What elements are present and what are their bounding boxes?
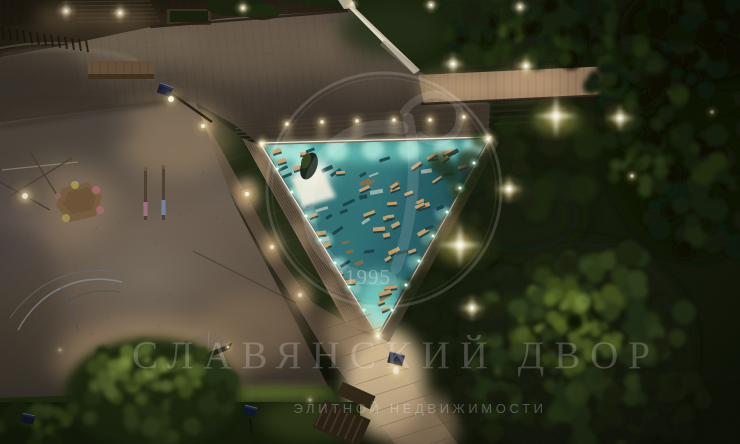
svg-text:ЭЛИТНОЙ НЕДВИЖИМОСТИ: ЭЛИТНОЙ НЕДВИЖИМОСТИ: [294, 401, 547, 416]
svg-text:СЛАВЯНСКИЙ ДВОР: СЛАВЯНСКИЙ ДВОР: [132, 334, 656, 377]
svg-text:1995: 1995: [345, 265, 391, 289]
